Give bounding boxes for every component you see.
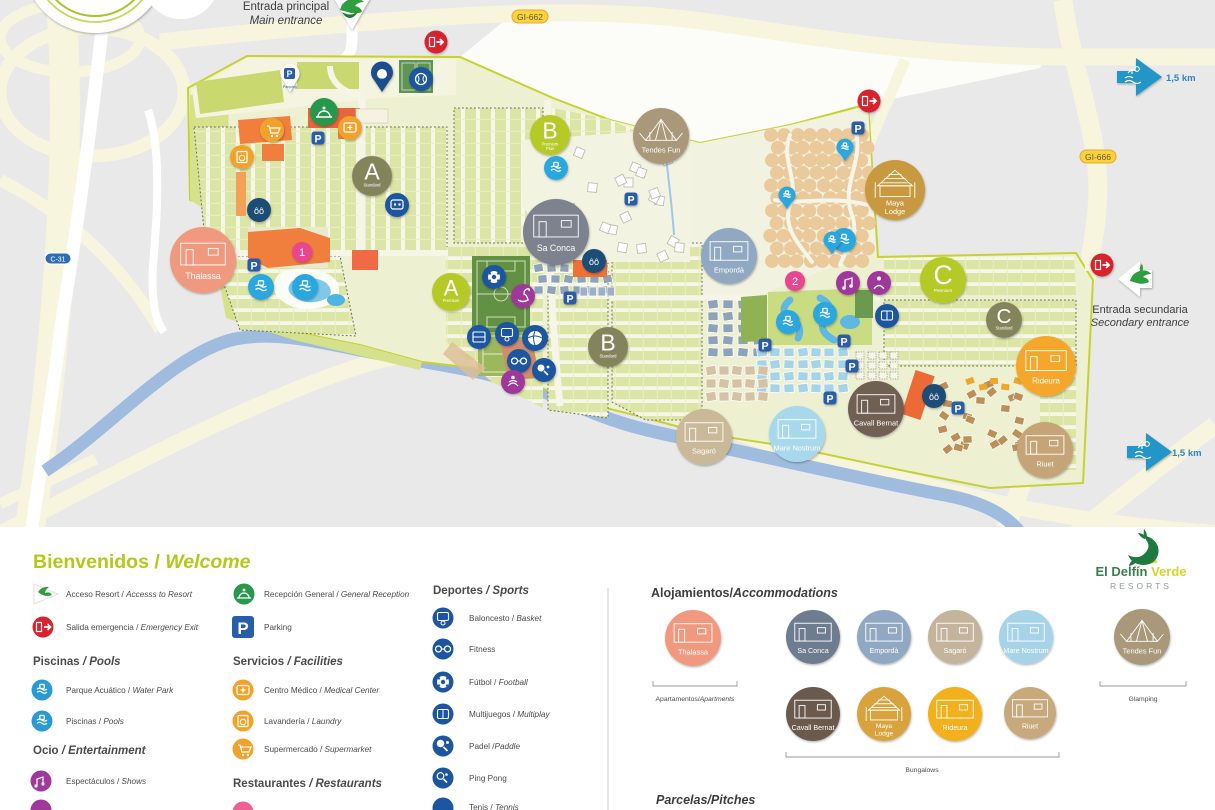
svg-text:P: P — [840, 336, 847, 348]
svg-text:Plus: Plus — [546, 146, 554, 151]
svg-text:Sa Conca: Sa Conca — [537, 243, 576, 253]
svg-text:Apartamentos/Apartments: Apartamentos/Apartments — [656, 696, 736, 703]
svg-text:Standard: Standard — [600, 353, 618, 358]
svg-text:GI-662: GI-662 — [517, 12, 543, 22]
svg-text:P: P — [826, 393, 833, 405]
svg-text:Servicios / Facilities: Servicios / Facilities — [233, 656, 343, 668]
svg-text:Ping Pong: Ping Pong — [469, 774, 507, 783]
svg-text:Mare Nostrum: Mare Nostrum — [774, 444, 821, 453]
svg-text:Bungalows: Bungalows — [905, 767, 939, 774]
svg-text:Glamping: Glamping — [1128, 696, 1157, 703]
svg-text:B: B — [542, 118, 557, 144]
svg-text:1,5 km: 1,5 km — [1166, 73, 1196, 84]
svg-text:Riuet: Riuet — [1036, 460, 1053, 469]
svg-text:Thalassa: Thalassa — [678, 648, 709, 657]
svg-text:Thalassa: Thalassa — [185, 271, 221, 281]
svg-text:P: P — [627, 194, 634, 206]
svg-text:1: 1 — [299, 247, 305, 259]
svg-text:Lavandería / Laundry: Lavandería / Laundry — [264, 717, 342, 726]
svg-text:Empordà: Empordà — [870, 647, 899, 655]
svg-text:2: 2 — [792, 276, 798, 288]
svg-text:Restaurantes / Restaurants: Restaurantes / Restaurants — [233, 778, 382, 790]
svg-text:1,5 km: 1,5 km — [1172, 448, 1202, 459]
svg-text:Maya: Maya — [876, 723, 892, 730]
svg-text:P: P — [250, 260, 257, 272]
svg-text:Riuet: Riuet — [1022, 724, 1038, 731]
svg-text:Parque Acuático / Water Park: Parque Acuático / Water Park — [66, 686, 174, 695]
svg-text:Lodge: Lodge — [885, 207, 905, 216]
svg-text:Piscinas / Pools: Piscinas / Pools — [33, 656, 121, 668]
svg-text:A: A — [364, 159, 380, 185]
svg-text:ôô: ôô — [929, 392, 939, 402]
svg-text:Mare Nostrum: Mare Nostrum — [1003, 647, 1048, 655]
svg-text:Standard: Standard — [996, 325, 1014, 330]
svg-text:Secondary entrance: Secondary entrance — [1091, 317, 1189, 329]
svg-text:Entrada secundaria: Entrada secundaria — [1092, 304, 1188, 316]
svg-text:Premium: Premium — [934, 288, 953, 293]
svg-text:Rideura: Rideura — [1032, 377, 1060, 386]
svg-text:Fitness: Fitness — [469, 645, 495, 654]
svg-text:Piscinas / Pools: Piscinas / Pools — [66, 717, 124, 726]
svg-text:Salida emergencia / Emergency: Salida emergencia / Emergency Exit — [66, 623, 199, 632]
svg-text:RESORTS: RESORTS — [1110, 581, 1172, 591]
svg-text:El Delfín Verde: El Delfín Verde — [1095, 564, 1186, 579]
svg-text:Sagaró: Sagaró — [943, 647, 966, 655]
svg-text:P: P — [314, 133, 321, 145]
svg-text:P: P — [566, 293, 573, 305]
svg-text:Multijuegos / Multiplay: Multijuegos / Multiplay — [469, 710, 550, 719]
svg-text:Pàrquing: Pàrquing — [283, 85, 297, 89]
svg-text:Main entrance: Main entrance — [250, 15, 323, 27]
svg-text:C: C — [933, 260, 952, 290]
svg-text:Tendes Fun: Tendes Fun — [642, 146, 681, 155]
svg-text:Entrada principal: Entrada principal — [243, 1, 329, 13]
svg-text:Rideura: Rideura — [942, 724, 967, 732]
svg-text:Padel /Paddle: Padel /Paddle — [469, 742, 520, 751]
svg-text:Parking: Parking — [264, 623, 292, 632]
svg-text:ôô: ôô — [254, 206, 264, 216]
svg-text:Fútbol / Football: Fútbol / Football — [469, 678, 528, 687]
svg-text:P: P — [848, 361, 855, 373]
svg-text:Cavall Bernat: Cavall Bernat — [854, 419, 898, 428]
svg-text:Empordà: Empordà — [714, 266, 745, 275]
svg-text:Ocio / Entertainment: Ocio / Entertainment — [33, 745, 147, 757]
svg-text:Centro Médico / Medical Center: Centro Médico / Medical Center — [264, 686, 379, 695]
svg-text:Lodge: Lodge — [875, 731, 894, 738]
svg-text:Sa Conca: Sa Conca — [797, 647, 828, 655]
svg-text:Tenis / Tennis: Tenis / Tennis — [469, 803, 519, 810]
svg-text:Sagaró: Sagaró — [692, 447, 716, 456]
svg-text:P: P — [761, 340, 768, 352]
svg-text:Standard: Standard — [364, 182, 382, 187]
svg-text:Parcelas/Pitches: Parcelas/Pitches — [656, 793, 755, 807]
svg-text:Premium: Premium — [443, 298, 460, 303]
svg-text:A: A — [444, 275, 459, 300]
svg-text:Baloncesto / Basket: Baloncesto / Basket — [469, 614, 542, 623]
svg-text:P: P — [854, 123, 861, 135]
svg-text:P: P — [954, 403, 961, 415]
svg-text:Tendes Fun: Tendes Fun — [1123, 647, 1162, 656]
svg-text:Bienvenidos / Welcome: Bienvenidos / Welcome — [33, 551, 251, 573]
svg-text:GI-666: GI-666 — [1085, 152, 1111, 162]
svg-text:B: B — [600, 330, 615, 356]
svg-text:Acceso Resort / Accesss to Res: Acceso Resort / Accesss to Resort — [66, 590, 193, 599]
svg-text:Deportes / Sports: Deportes / Sports — [433, 585, 529, 597]
svg-text:ôô: ôô — [589, 257, 599, 267]
svg-text:Cavall Bernat: Cavall Bernat — [792, 724, 835, 732]
svg-text:Espectáculos / Shows: Espectáculos / Shows — [66, 777, 146, 786]
svg-text:Supermercado / Supermarket: Supermercado / Supermarket — [264, 745, 372, 754]
svg-text:Recepción General / General Re: Recepción General / General Reception — [264, 590, 410, 599]
svg-text:P: P — [286, 69, 292, 79]
svg-text:C-31: C-31 — [50, 257, 65, 264]
svg-text:P: P — [237, 619, 248, 638]
svg-text:Alojamientos/Accommodations: Alojamientos/Accommodations — [651, 586, 838, 600]
